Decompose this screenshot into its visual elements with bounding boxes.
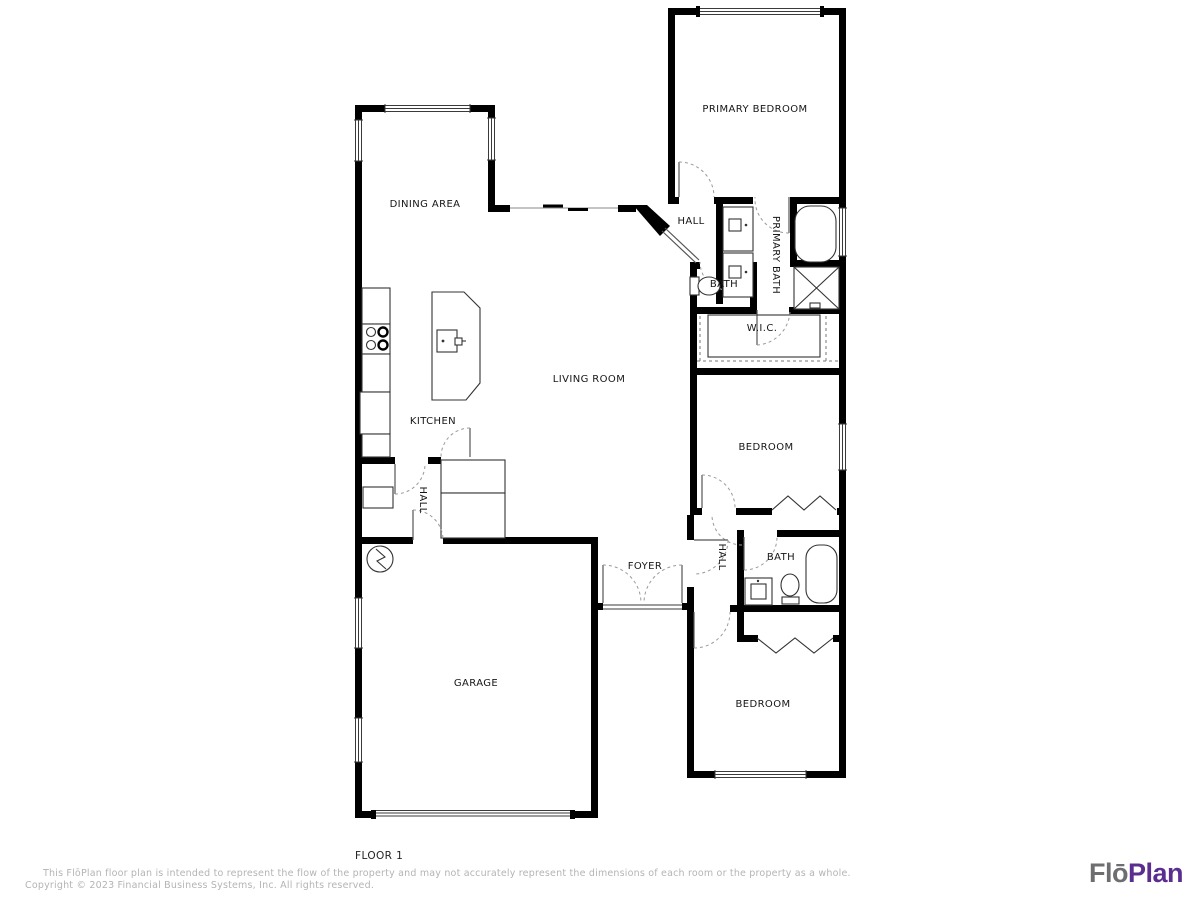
door-arc-kitchen-hall bbox=[441, 428, 470, 457]
floor-plan-drawing: PRIMARY BEDROOM HALL PRIMARY BATH BATH W… bbox=[0, 0, 1200, 900]
bifold-closet-bedroom-lower bbox=[757, 638, 833, 653]
door-arc-primary-bedroom bbox=[679, 162, 714, 197]
window-dining-left bbox=[354, 120, 363, 161]
floplan-logo-flo: Flō bbox=[1089, 858, 1128, 888]
walls bbox=[355, 8, 846, 818]
label-bath-primary: BATH bbox=[710, 279, 738, 290]
floor-plan-page: PRIMARY BEDROOM HALL PRIMARY BATH BATH W… bbox=[0, 0, 1200, 900]
label-foyer: FOYER bbox=[628, 561, 662, 572]
label-hall-kitchen: HALL bbox=[417, 486, 428, 513]
window-primary-bedroom-top bbox=[696, 6, 824, 17]
floplan-logo: FlōPlan bbox=[1089, 858, 1183, 889]
label-bedroom-middle: BEDROOM bbox=[739, 442, 794, 453]
door-leaf-hall-diagonal bbox=[662, 228, 699, 263]
hall-closet-lower bbox=[441, 493, 505, 538]
primary-shower bbox=[794, 267, 839, 309]
kitchen-counter bbox=[360, 288, 390, 457]
garage-door bbox=[371, 810, 575, 819]
door-arc-bedroom-middle bbox=[702, 475, 735, 508]
refrigerator bbox=[360, 392, 390, 434]
diagonal-wall-upper bbox=[633, 205, 670, 236]
fixtures bbox=[360, 206, 840, 653]
label-living-room: LIVING ROOM bbox=[553, 374, 625, 385]
door-arc-hall-garage bbox=[413, 510, 443, 540]
footer-disclaimer: This FlōPlan floor plan is intended to r… bbox=[43, 868, 851, 879]
window-dining-right bbox=[487, 118, 496, 160]
label-wic: W.I.C. bbox=[747, 323, 778, 334]
label-primary-bedroom: PRIMARY BEDROOM bbox=[702, 104, 807, 115]
label-garage: GARAGE bbox=[454, 678, 498, 689]
window-primary-bath-right bbox=[838, 208, 847, 256]
window-bedroom-middle-right bbox=[838, 424, 847, 470]
door-arc-hall-bedroom-lower bbox=[694, 612, 730, 648]
tub-bath-hall bbox=[806, 545, 837, 603]
label-bedroom-lower: BEDROOM bbox=[736, 699, 791, 710]
bifold-closet-bedroom-middle bbox=[772, 496, 836, 510]
window-garage-left-2 bbox=[354, 718, 363, 762]
footer-copyright: Copyright © 2023 Financial Business Syst… bbox=[25, 880, 374, 891]
floplan-logo-plan: Plan bbox=[1128, 858, 1183, 888]
label-hall-primary: HALL bbox=[677, 216, 704, 227]
label-dining-area: DINING AREA bbox=[390, 199, 461, 210]
label-hall-bedrooms: HALL bbox=[716, 543, 727, 570]
laundry-appliance bbox=[363, 487, 393, 508]
window-garage-left-1 bbox=[354, 598, 363, 648]
hall-closet-upper bbox=[441, 460, 505, 493]
windows bbox=[354, 6, 847, 819]
label-primary-bath: PRIMARY BATH bbox=[770, 216, 781, 294]
window-dining-top bbox=[385, 104, 470, 113]
label-bath-hall: BATH bbox=[767, 552, 795, 563]
window-bedroom-lower-bottom bbox=[715, 770, 806, 779]
water-heater bbox=[367, 546, 393, 572]
primary-tub bbox=[795, 206, 836, 262]
floor-label: FLOOR 1 bbox=[355, 850, 403, 862]
toilet-bath-hall bbox=[781, 574, 799, 596]
kitchen-island bbox=[432, 292, 480, 400]
label-kitchen: KITCHEN bbox=[410, 416, 456, 427]
island-sink bbox=[437, 330, 457, 352]
